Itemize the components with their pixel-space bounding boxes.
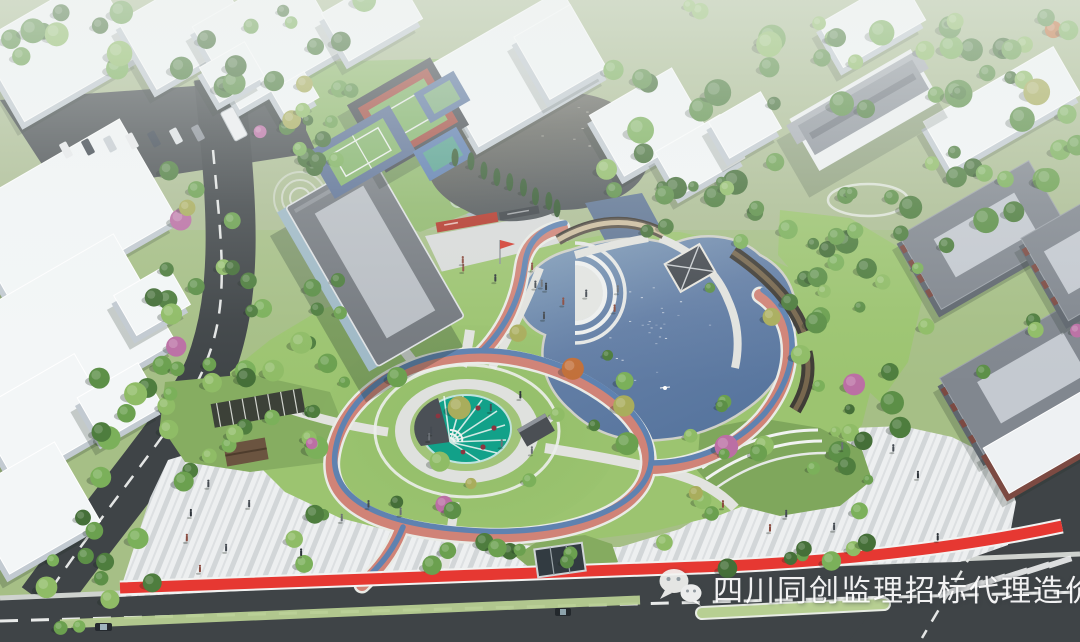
rendering-viewport: 四川同创监理招标代理造价 — [0, 0, 1080, 642]
haze-overlay — [0, 0, 1080, 642]
aerial-rendering-canvas — [0, 0, 1080, 642]
